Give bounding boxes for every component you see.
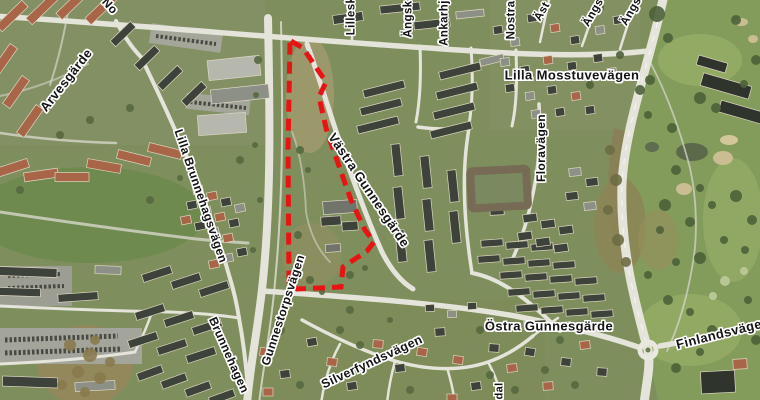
aerial-photo-canvas	[0, 0, 760, 400]
aerial-map: No Lillesk Ängsk Ankarhj Nostra Äst Ängs…	[0, 0, 760, 400]
courtyard-building	[470, 169, 528, 209]
